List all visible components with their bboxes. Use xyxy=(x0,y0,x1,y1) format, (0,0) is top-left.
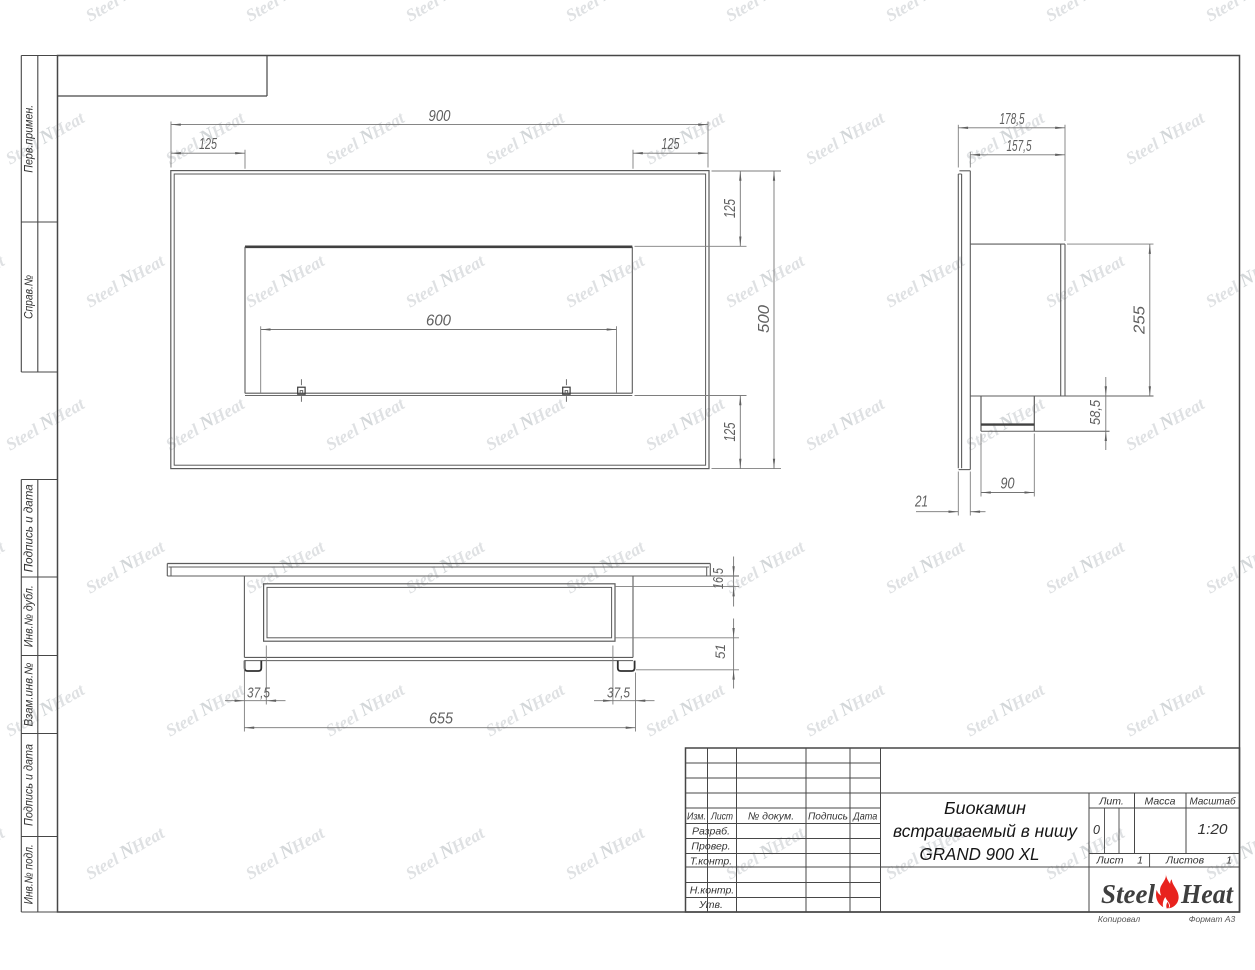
svg-text:Steel NHeat: Steel NHeat xyxy=(402,249,489,311)
svg-text:Steel NHeat: Steel NHeat xyxy=(0,249,9,311)
svg-text:Steel NHeat: Steel NHeat xyxy=(82,535,169,597)
svg-text:900: 900 xyxy=(429,108,451,125)
svg-text:Steel NHeat: Steel NHeat xyxy=(0,821,9,883)
svg-text:Steel NHeat: Steel NHeat xyxy=(2,392,89,454)
svg-text:Утв.: Утв. xyxy=(698,899,723,911)
svg-text:125: 125 xyxy=(662,136,680,153)
svg-text:Разраб.: Разраб. xyxy=(692,826,730,838)
svg-text:Steel NHeat: Steel NHeat xyxy=(1122,106,1209,168)
svg-text:Steel NHeat: Steel NHeat xyxy=(642,392,729,454)
svg-text:Steel NHeat: Steel NHeat xyxy=(402,0,489,25)
svg-text:157,5: 157,5 xyxy=(1007,138,1032,155)
svg-text:Масса: Масса xyxy=(1144,796,1175,808)
svg-text:Steel NHeat: Steel NHeat xyxy=(1122,678,1209,740)
svg-text:255: 255 xyxy=(1131,306,1148,335)
svg-text:Steel NHeat: Steel NHeat xyxy=(402,821,489,883)
svg-text:Листов: Листов xyxy=(1165,855,1205,867)
svg-text:Подпись и дата: Подпись и дата xyxy=(24,744,36,826)
svg-text:Steel NHeat: Steel NHeat xyxy=(402,535,489,597)
svg-text:Steel NHeat: Steel NHeat xyxy=(0,535,9,597)
svg-text:Steel NHeat: Steel NHeat xyxy=(162,678,249,740)
svg-text:Steel NHeat: Steel NHeat xyxy=(562,821,649,883)
svg-text:Steel NHeat: Steel NHeat xyxy=(82,249,169,311)
svg-text:Н.контр.: Н.контр. xyxy=(690,885,734,897)
svg-text:Steel NHeat: Steel NHeat xyxy=(322,678,409,740)
svg-text:178,5: 178,5 xyxy=(1000,111,1025,128)
svg-text:600: 600 xyxy=(426,313,451,330)
svg-text:1:20: 1:20 xyxy=(1198,821,1229,838)
svg-text:51: 51 xyxy=(712,644,728,659)
svg-text:Steel NHeat: Steel NHeat xyxy=(82,821,169,883)
svg-text:Steel NHeat: Steel NHeat xyxy=(882,0,969,25)
svg-text:Steel NHeat: Steel NHeat xyxy=(1202,0,1255,25)
svg-text:Steel NHeat: Steel NHeat xyxy=(82,0,169,25)
svg-text:1: 1 xyxy=(1137,855,1143,867)
svg-text:1: 1 xyxy=(1226,855,1232,867)
svg-text:Steel NHeat: Steel NHeat xyxy=(322,392,409,454)
svg-text:Steel NHeat: Steel NHeat xyxy=(882,249,969,311)
svg-text:Steel NHeat: Steel NHeat xyxy=(802,392,889,454)
svg-text:Steel NHeat: Steel NHeat xyxy=(0,0,9,25)
svg-text:Steel NHeat: Steel NHeat xyxy=(322,106,409,168)
svg-text:Лист: Лист xyxy=(710,812,733,823)
svg-text:Steel NHeat: Steel NHeat xyxy=(482,678,569,740)
svg-text:Heat: Heat xyxy=(1180,879,1234,909)
svg-text:Steel NHeat: Steel NHeat xyxy=(962,678,1049,740)
svg-text:№ докум.: № докум. xyxy=(748,811,794,823)
svg-text:58,5: 58,5 xyxy=(1087,399,1104,425)
svg-text:Steel NHeat: Steel NHeat xyxy=(2,678,89,740)
svg-text:Steel NHeat: Steel NHeat xyxy=(1042,535,1129,597)
svg-text:Перв.примен.: Перв.примен. xyxy=(24,105,36,173)
svg-text:Steel NHeat: Steel NHeat xyxy=(722,249,809,311)
svg-text:Steel NHeat: Steel NHeat xyxy=(1122,392,1209,454)
svg-text:Steel NHeat: Steel NHeat xyxy=(562,249,649,311)
svg-text:21: 21 xyxy=(914,494,928,511)
svg-text:Steel NHeat: Steel NHeat xyxy=(882,535,969,597)
svg-text:Подпись: Подпись xyxy=(808,811,848,823)
svg-text:Steel NHeat: Steel NHeat xyxy=(1042,249,1129,311)
svg-text:Т.контр.: Т.контр. xyxy=(690,856,732,868)
svg-text:Steel NHeat: Steel NHeat xyxy=(802,678,889,740)
svg-text:Steel NHeat: Steel NHeat xyxy=(242,0,329,25)
svg-text:Масштаб: Масштаб xyxy=(1190,796,1237,808)
svg-text:Подпись и дата: Подпись и дата xyxy=(24,484,36,572)
svg-text:Биокамин: Биокамин xyxy=(944,798,1026,818)
svg-text:125: 125 xyxy=(722,422,739,441)
svg-text:125: 125 xyxy=(199,136,217,153)
svg-text:Steel NHeat: Steel NHeat xyxy=(242,249,329,311)
svg-text:Изм.: Изм. xyxy=(687,812,706,823)
svg-text:Лит.: Лит. xyxy=(1098,796,1124,808)
svg-text:Дата: Дата xyxy=(852,812,877,823)
svg-text:655: 655 xyxy=(429,711,453,728)
svg-text:90: 90 xyxy=(1001,475,1015,492)
svg-text:Steel NHeat: Steel NHeat xyxy=(482,106,569,168)
svg-text:500: 500 xyxy=(756,305,773,333)
svg-text:Steel NHeat: Steel NHeat xyxy=(802,106,889,168)
svg-text:0: 0 xyxy=(1093,823,1100,837)
svg-text:GRAND 900 XL: GRAND 900 XL xyxy=(920,844,1040,864)
svg-text:37,5: 37,5 xyxy=(247,684,271,701)
svg-text:Провер.: Провер. xyxy=(691,841,730,853)
svg-text:16,5: 16,5 xyxy=(710,568,727,589)
svg-text:Копировал: Копировал xyxy=(1098,914,1140,924)
svg-text:Steel NHeat: Steel NHeat xyxy=(482,392,569,454)
svg-text:встраиваемый в нишу: встраиваемый в нишу xyxy=(893,821,1078,841)
svg-text:Steel NHeat: Steel NHeat xyxy=(242,821,329,883)
svg-text:Инв.№ подл.: Инв.№ подл. xyxy=(24,844,36,904)
svg-text:Steel NHeat: Steel NHeat xyxy=(2,106,89,168)
svg-text:Steel NHeat: Steel NHeat xyxy=(642,678,729,740)
svg-text:Steel NHeat: Steel NHeat xyxy=(1202,535,1255,597)
svg-text:Steel NHeat: Steel NHeat xyxy=(1202,249,1255,311)
svg-text:Steel: Steel xyxy=(1101,879,1155,909)
svg-text:Steel NHeat: Steel NHeat xyxy=(642,106,729,168)
svg-text:Взам.инв.№: Взам.инв.№ xyxy=(24,662,36,727)
svg-text:Инв.№ дубл.: Инв.№ дубл. xyxy=(24,585,36,647)
svg-text:Формат А3: Формат А3 xyxy=(1189,914,1236,924)
svg-text:Steel NHeat: Steel NHeat xyxy=(562,0,649,25)
svg-text:Steel NHeat: Steel NHeat xyxy=(1042,0,1129,25)
svg-text:Steel NHeat: Steel NHeat xyxy=(562,535,649,597)
svg-text:Steel NHeat: Steel NHeat xyxy=(722,0,809,25)
svg-text:37,5: 37,5 xyxy=(607,684,631,701)
svg-text:Справ.№: Справ.№ xyxy=(24,275,36,319)
svg-text:Steel NHeat: Steel NHeat xyxy=(242,535,329,597)
svg-text:125: 125 xyxy=(722,199,739,218)
svg-text:Лист: Лист xyxy=(1095,855,1123,867)
svg-text:Steel NHeat: Steel NHeat xyxy=(962,392,1049,454)
svg-text:Steel NHeat: Steel NHeat xyxy=(722,821,809,883)
